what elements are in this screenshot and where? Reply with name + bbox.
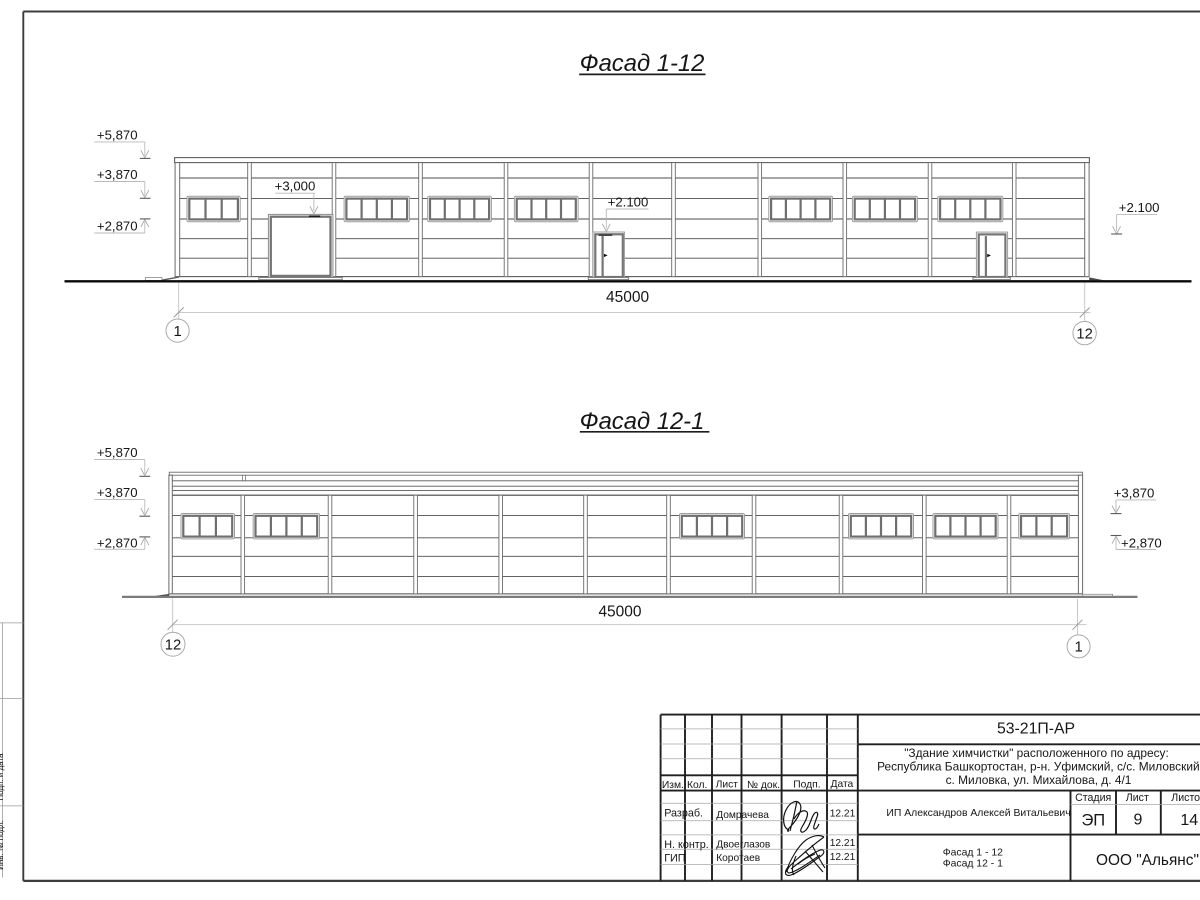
svg-text:9: 9 <box>1133 812 1142 829</box>
svg-text:+2,870: +2,870 <box>1121 536 1162 551</box>
svg-text:Республика Башкортостан, р-н.: Республика Башкортостан, р-н. Уфимский, … <box>877 760 1200 774</box>
svg-text:1: 1 <box>173 324 181 340</box>
svg-text:+3,870: +3,870 <box>97 485 138 500</box>
svg-text:"Здание химчистки" расположенн: "Здание химчистки" расположенного по адр… <box>904 746 1169 760</box>
svg-text:45000: 45000 <box>598 603 641 620</box>
svg-text:Фасад 1 - 12: Фасад 1 - 12 <box>943 848 1003 859</box>
svg-text:14: 14 <box>1180 812 1198 829</box>
svg-text:Фасад 1-12: Фасад 1-12 <box>580 50 705 77</box>
svg-text:12.21: 12.21 <box>830 808 856 819</box>
svg-text:Инв. № подл.: Инв. № подл. <box>0 820 5 870</box>
svg-text:+3,870: +3,870 <box>97 167 138 182</box>
svg-text:Дата: Дата <box>830 779 853 790</box>
svg-text:+5,870: +5,870 <box>97 445 138 460</box>
svg-text:Коротаев: Коротаев <box>716 853 760 864</box>
svg-text:ЭП: ЭП <box>1081 812 1105 830</box>
svg-text:Н. контр.: Н. контр. <box>664 839 709 851</box>
svg-text:+3,870: +3,870 <box>1114 485 1155 500</box>
svg-text:Домрачева: Домрачева <box>716 810 769 821</box>
svg-text:Подп. и дата: Подп. и дата <box>0 753 5 801</box>
svg-text:ООО "Альянс": ООО "Альянс" <box>1096 852 1199 869</box>
svg-text:с. Миловка, ул. Михайлова, д.: с. Миловка, ул. Михайлова, д. 4/1 <box>946 773 1132 787</box>
svg-text:+2,870: +2,870 <box>97 219 138 234</box>
svg-text:12.21: 12.21 <box>830 838 856 849</box>
svg-text:Фасад 12 - 1: Фасад 12 - 1 <box>943 858 1003 869</box>
svg-text:ИП Александров Алексей Виталье: ИП Александров Алексей Витальевич <box>886 808 1070 819</box>
svg-text:+3,000: +3,000 <box>275 178 316 193</box>
svg-text:+2.100: +2.100 <box>608 194 649 209</box>
svg-text:45000: 45000 <box>606 289 649 306</box>
svg-text:+2.100: +2.100 <box>1119 200 1160 215</box>
svg-text:1: 1 <box>1074 640 1082 656</box>
svg-text:12: 12 <box>165 637 181 653</box>
svg-text:12.21: 12.21 <box>830 852 856 863</box>
svg-text:Стадия: Стадия <box>1075 792 1111 804</box>
svg-text:Листов: Листов <box>1171 792 1200 804</box>
svg-text:ГИП: ГИП <box>664 852 685 864</box>
svg-text:Лист: Лист <box>1126 792 1149 804</box>
svg-text:Кол.: Кол. <box>687 780 707 791</box>
svg-text:+5,870: +5,870 <box>97 128 138 143</box>
svg-text:Изм.: Изм. <box>662 780 684 791</box>
svg-text:Двоеглазов: Двоеглазов <box>716 840 770 851</box>
svg-text:Лист: Лист <box>716 780 739 791</box>
svg-text:Разраб.: Разраб. <box>664 807 703 819</box>
svg-text:+2,870: +2,870 <box>97 535 138 550</box>
svg-text:12: 12 <box>1076 326 1092 342</box>
svg-text:№ док.: № док. <box>747 780 780 791</box>
svg-text:Подп.: Подп. <box>793 780 820 791</box>
svg-text:Фасад 12-1: Фасад 12-1 <box>580 408 705 435</box>
svg-text:53-21П-АР: 53-21П-АР <box>997 721 1075 738</box>
